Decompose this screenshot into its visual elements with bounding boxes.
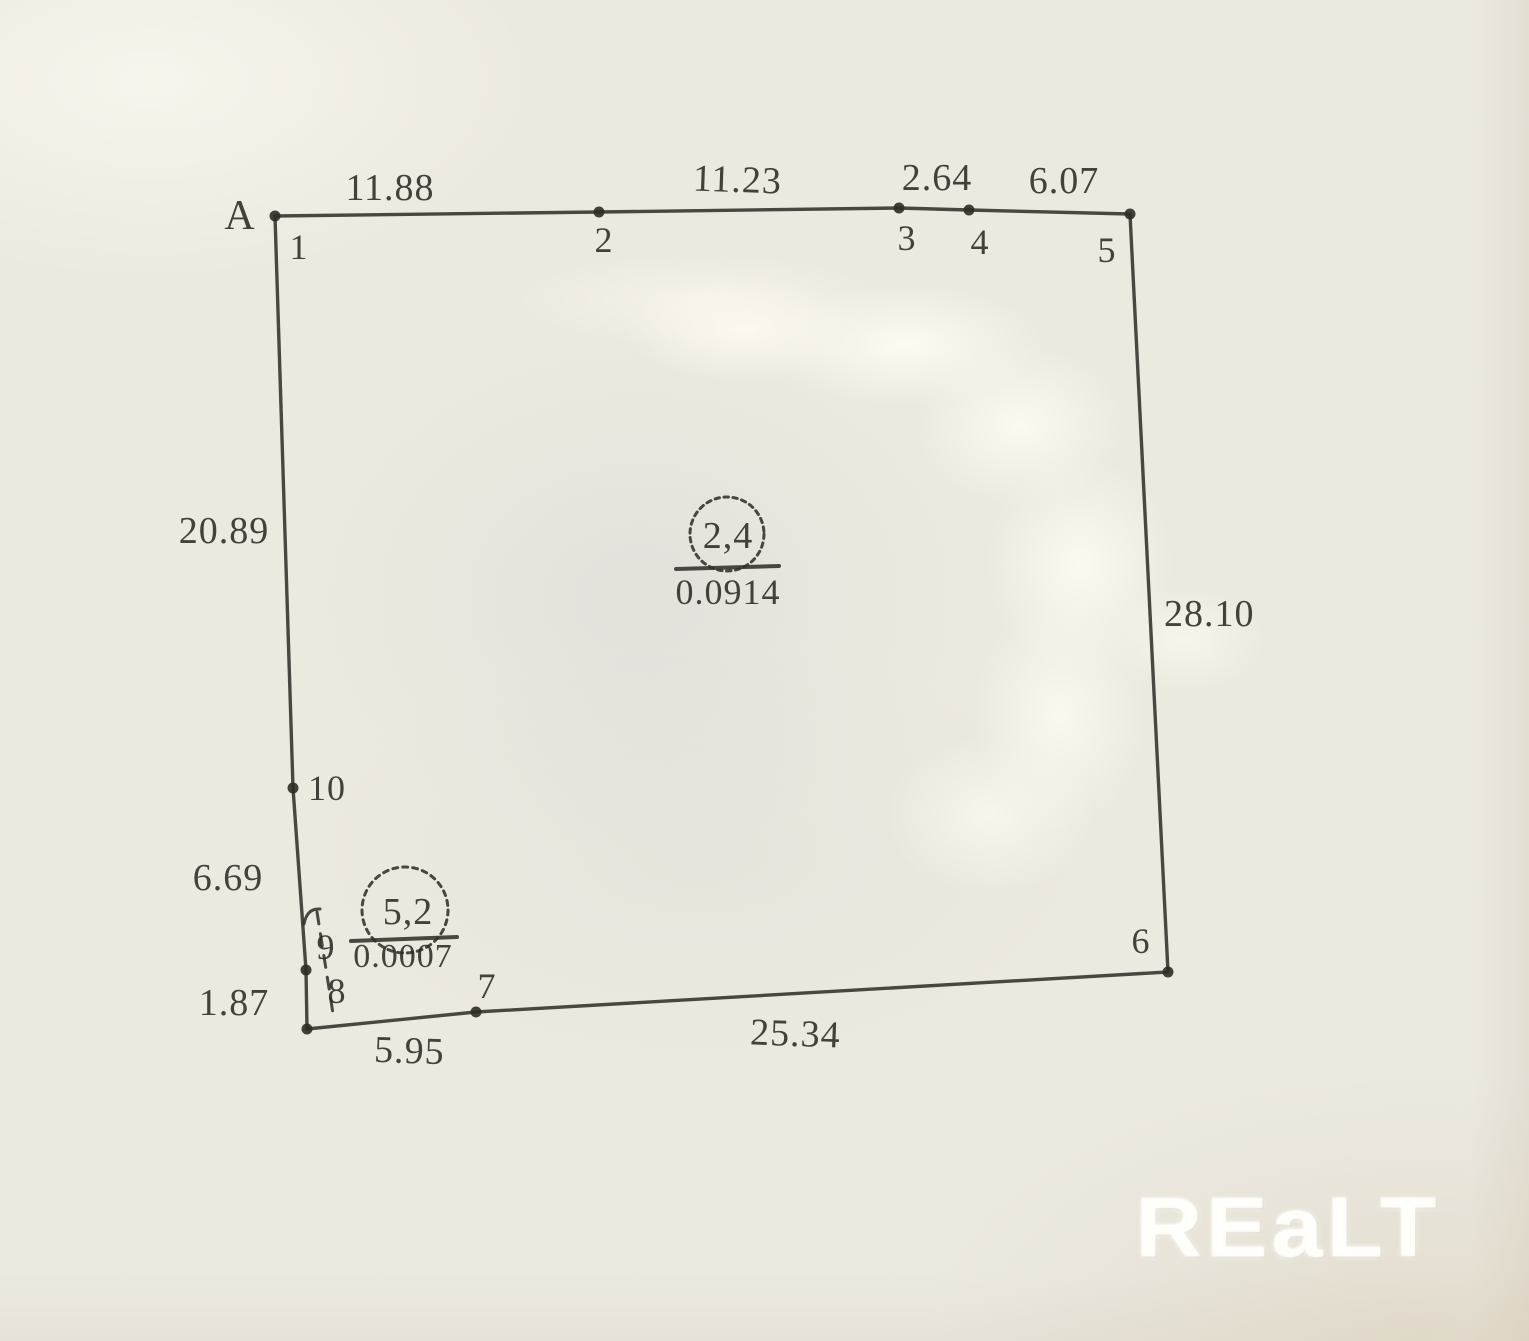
vertex-label-9: 9 xyxy=(317,927,336,967)
vertex-label-6: 6 xyxy=(1132,921,1151,961)
vertex-label-7: 7 xyxy=(478,966,497,1006)
vertex-dot-3 xyxy=(894,203,905,214)
side-length-10-1: 20.89 xyxy=(179,510,270,552)
side-length-4-5: 6.07 xyxy=(1029,160,1100,202)
vertex-dot-2 xyxy=(594,207,605,218)
vertex-label-5: 5 xyxy=(1098,230,1117,270)
vertex-label-8: 8 xyxy=(328,971,347,1011)
vertex-dot-6 xyxy=(1163,967,1174,978)
parcel-area: 0.0007 xyxy=(353,938,453,975)
side-length-5-6: 28.10 xyxy=(1164,593,1255,635)
realt-watermark: REaLT xyxy=(1136,1180,1441,1277)
side-length-3-4: 2.64 xyxy=(902,157,973,199)
parcel-fraction-line xyxy=(676,566,779,569)
side-length-2-3: 11.23 xyxy=(692,157,783,202)
vertex-label-2: 2 xyxy=(595,220,614,260)
side-length-6-7: 25.34 xyxy=(749,1011,841,1056)
vertex-label-3: 3 xyxy=(898,218,917,258)
parcel-number: 2,4 xyxy=(703,515,754,557)
scanned-survey-plan-photo: A 1 2 3 4 5 6 7 8 9 10 11.88 11.23 2.64 … xyxy=(0,0,1529,1341)
vertex-dot-1 xyxy=(270,211,281,222)
vertex-dot-9 xyxy=(301,965,312,976)
side-length-9-10: 6.69 xyxy=(193,857,264,899)
parcel-label-2-4: 2,4 0.0914 xyxy=(676,497,781,612)
corner-point-label: A xyxy=(224,193,255,239)
vertex-label-4: 4 xyxy=(971,222,990,262)
side-length-7-8: 5.95 xyxy=(373,1029,445,1073)
land-plot-diagram: A 1 2 3 4 5 6 7 8 9 10 11.88 11.23 2.64 … xyxy=(0,0,1529,1341)
vertex-dot-4 xyxy=(964,205,975,216)
vertex-dot-5 xyxy=(1125,209,1136,220)
parcel-area: 0.0914 xyxy=(676,572,781,612)
vertex-dot-10 xyxy=(288,783,299,794)
parcel-number: 5,2 xyxy=(383,891,434,933)
vertex-label-10: 10 xyxy=(308,768,346,808)
vertex-dot-8 xyxy=(302,1024,313,1035)
parcel-label-5-2: 5,2 0.0007 xyxy=(351,867,457,975)
side-length-1-2: 11.88 xyxy=(345,167,434,209)
vertex-label-1: 1 xyxy=(290,227,309,267)
side-length-8-9: 1.87 xyxy=(199,982,270,1024)
vertex-dot-7 xyxy=(471,1007,482,1018)
